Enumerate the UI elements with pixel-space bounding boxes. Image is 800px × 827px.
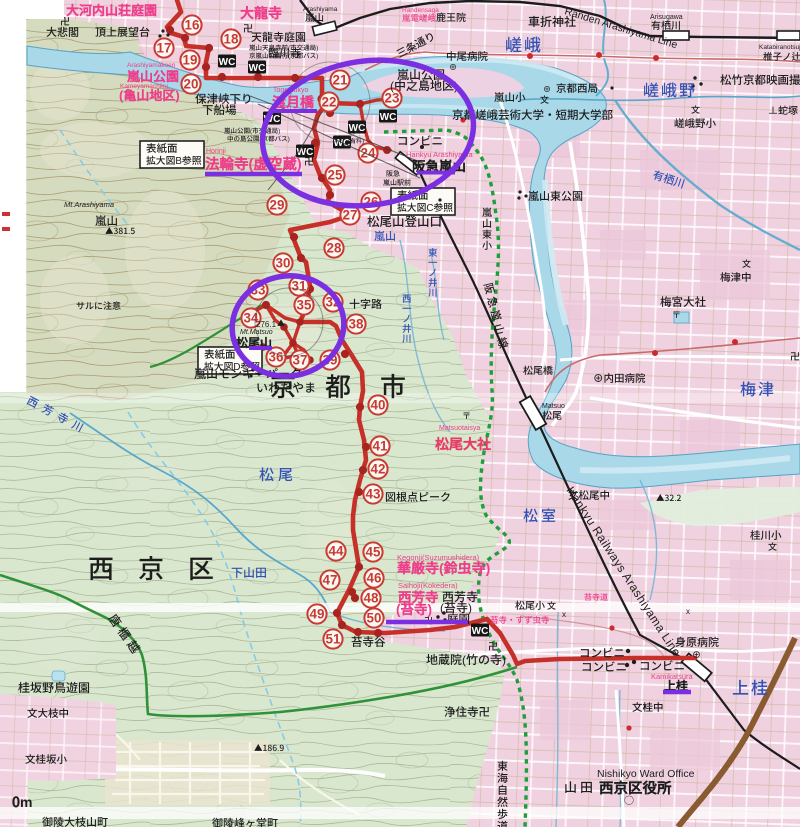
svg-text:庭園: 庭園 — [447, 611, 470, 627]
svg-text:京都嵯峨芸術大学・短期大学部: 京都嵯峨芸術大学・短期大学部 — [452, 107, 613, 123]
svg-text:東一ノ井川: 東一ノ井川 — [428, 245, 438, 299]
svg-text:拡大図B参照: 拡大図B参照 — [146, 153, 202, 167]
svg-text:嵐山東公園: 嵐山東公園 — [528, 188, 583, 204]
svg-text:WC: WC — [472, 626, 489, 637]
svg-text:御陵峰ヶ堂町: 御陵峰ヶ堂町 — [212, 815, 278, 827]
svg-text:22: 22 — [322, 95, 337, 110]
svg-text:松尾: 松尾 — [542, 407, 562, 422]
svg-text:42: 42 — [371, 462, 386, 477]
svg-text:松竹京都映画撮影: 松竹京都映画撮影 — [720, 72, 800, 88]
svg-text:50: 50 — [367, 611, 382, 626]
svg-text:浄住寺卍: 浄住寺卍 — [444, 704, 490, 720]
svg-text:27: 27 — [343, 208, 358, 223]
svg-text:嵐山: 嵐山 — [305, 10, 324, 24]
svg-text:47: 47 — [323, 573, 338, 588]
svg-text:下船場: 下船場 — [202, 102, 237, 118]
svg-text:嵐山東小: 嵐山東小 — [482, 204, 492, 252]
svg-text:松尾大社: 松尾大社 — [435, 434, 491, 454]
svg-text:○: ○ — [624, 792, 634, 807]
svg-text:地蔵院(竹の寺): 地蔵院(竹の寺) — [426, 651, 506, 668]
svg-text:卍: 卍 — [790, 348, 800, 363]
svg-text:文: 文 — [540, 93, 549, 106]
svg-text:臨川寺: 臨川寺 — [268, 45, 301, 61]
svg-text:38: 38 — [349, 317, 364, 332]
svg-text:西一ノ井川: 西一ノ井川 — [402, 291, 412, 345]
svg-text:文: 文 — [768, 540, 777, 553]
svg-text:18: 18 — [224, 32, 239, 47]
svg-text:嵯峨: 嵯峨 — [505, 31, 543, 56]
svg-text:山田: 山田 — [564, 777, 596, 796]
svg-text:41: 41 — [373, 439, 388, 454]
svg-text:サルに注意: サルに注意 — [76, 299, 121, 312]
svg-text:苔寺谷: 苔寺谷 — [351, 634, 386, 650]
svg-text:梅津: 梅津 — [740, 376, 776, 400]
svg-text:鹿王院: 鹿王院 — [436, 9, 466, 24]
svg-text:⊥蛇塚: ⊥蛇塚 — [768, 102, 798, 117]
svg-text:文: 文 — [742, 257, 751, 270]
svg-text:20: 20 — [184, 77, 199, 92]
svg-text:梅津中: 梅津中 — [720, 270, 752, 285]
svg-text:法輪寺(虚空蔵): 法輪寺(虚空蔵) — [205, 153, 302, 174]
svg-text:46: 46 — [367, 571, 382, 586]
svg-text:(亀山地区): (亀山地区) — [119, 85, 180, 104]
svg-text:WC: WC — [219, 57, 236, 68]
svg-text:コンビニ: コンビニ — [397, 133, 443, 149]
svg-text:24: 24 — [361, 146, 376, 161]
svg-text:十字路: 十字路 — [349, 296, 382, 312]
svg-text:Mt.Arashiyama: Mt.Arashiyama — [64, 200, 114, 209]
svg-text:嵐山小: 嵐山小 — [494, 90, 526, 105]
svg-text:中の島公園(京都バス): 中の島公園(京都バス) — [227, 133, 290, 143]
svg-text:文: 文 — [547, 599, 556, 612]
svg-text:松室: 松室 — [523, 505, 559, 526]
svg-text:苔寺道: 苔寺道 — [584, 592, 608, 603]
svg-text:276.1: 276.1 — [256, 320, 277, 329]
svg-text:嵐電嵯峨: 嵐電嵯峨 — [402, 12, 437, 24]
svg-text:17: 17 — [157, 41, 172, 56]
svg-text:⊕: ⊕ — [692, 648, 701, 661]
svg-text:x: x — [643, 701, 647, 712]
svg-text:⊕: ⊕ — [449, 62, 457, 73]
svg-text:京都西局: 京都西局 — [556, 81, 598, 96]
svg-text:〒: 〒 — [462, 409, 471, 422]
svg-text:43: 43 — [366, 487, 381, 502]
svg-text:大河内山荘庭園: 大河内山荘庭園 — [66, 0, 157, 19]
svg-text:▲381.5: ▲381.5 — [105, 225, 135, 237]
svg-text:▲: ▲ — [277, 318, 285, 329]
svg-text:苔寺・すず虫寺: 苔寺・すず虫寺 — [490, 614, 550, 626]
svg-text:49: 49 — [310, 607, 325, 622]
svg-text:有栖川: 有栖川 — [651, 17, 681, 32]
svg-text:大悲閣: 大悲閣 — [46, 24, 79, 40]
svg-text:上桂: 上桂 — [732, 674, 770, 699]
svg-text:48: 48 — [364, 591, 379, 606]
svg-text:頂上展望台: 頂上展望台 — [95, 24, 150, 40]
svg-text:桂坂野鳥遊園: 桂坂野鳥遊園 — [18, 679, 90, 696]
svg-text:嵯峨野: 嵯峨野 — [643, 77, 697, 101]
svg-text:44: 44 — [329, 544, 344, 559]
svg-text:45: 45 — [366, 545, 381, 560]
svg-text:桂川小: 桂川小 — [750, 528, 782, 543]
svg-text:松尾橋: 松尾橋 — [523, 362, 553, 377]
svg-text:0m: 0m — [12, 792, 32, 812]
svg-text:文大枝中: 文大枝中 — [27, 706, 69, 721]
svg-text:28: 28 — [327, 241, 342, 256]
svg-text:WC: WC — [249, 63, 266, 74]
svg-text:51: 51 — [326, 632, 341, 647]
svg-text:〒: 〒 — [672, 308, 681, 321]
svg-text:京都市: 京都市 — [270, 367, 435, 404]
svg-text:29: 29 — [270, 198, 285, 213]
svg-text:梅宮大社: 梅宮大社 — [660, 294, 706, 310]
svg-text:東海自然歩道: 東海自然歩道 — [497, 758, 508, 827]
svg-text:WC: WC — [380, 112, 397, 123]
svg-text:16: 16 — [185, 18, 200, 33]
svg-text:x: x — [686, 606, 690, 617]
svg-text:嵐山: 嵐山 — [374, 228, 396, 244]
svg-text:文桂坂小: 文桂坂小 — [25, 752, 67, 767]
svg-text:(有料): (有料) — [348, 136, 364, 145]
svg-text:文桂中: 文桂中 — [632, 700, 664, 715]
svg-text:▲32.2: ▲32.2 — [656, 492, 682, 504]
svg-text:36: 36 — [269, 350, 284, 365]
svg-text:35: 35 — [297, 298, 312, 313]
svg-text:19: 19 — [183, 53, 198, 68]
svg-text:⊕内田病院: ⊕内田病院 — [593, 371, 646, 386]
svg-text:華厳寺(鈴虫寺): 華厳寺(鈴虫寺) — [397, 558, 490, 578]
svg-text:西京区役所: 西京区役所 — [599, 777, 672, 798]
svg-text:x: x — [562, 609, 566, 620]
svg-text:Matsuotaisya: Matsuotaisya — [439, 425, 480, 432]
svg-text:卍: 卍 — [304, 153, 314, 168]
svg-text:松尾: 松尾 — [259, 464, 297, 485]
svg-text:椎子ノ辻: 椎子ノ辻 — [763, 49, 800, 63]
svg-text:25: 25 — [328, 168, 343, 183]
svg-text:コンビニ: コンビニ — [581, 659, 627, 675]
svg-text:図根点ピーク: 図根点ピーク — [385, 489, 451, 505]
svg-text:松尾小: 松尾小 — [515, 597, 545, 612]
svg-text:▲186.9: ▲186.9 — [254, 742, 284, 754]
svg-text:文: 文 — [691, 103, 700, 116]
svg-text:嵐山駅前: 嵐山駅前 — [383, 178, 411, 188]
svg-text:30: 30 — [276, 256, 291, 271]
svg-text:嵯峨野小: 嵯峨野小 — [674, 116, 716, 131]
svg-text:御陵大枝山町: 御陵大枝山町 — [42, 814, 108, 827]
svg-text:西京区: 西京区 — [88, 549, 238, 586]
svg-text:21: 21 — [333, 73, 348, 88]
